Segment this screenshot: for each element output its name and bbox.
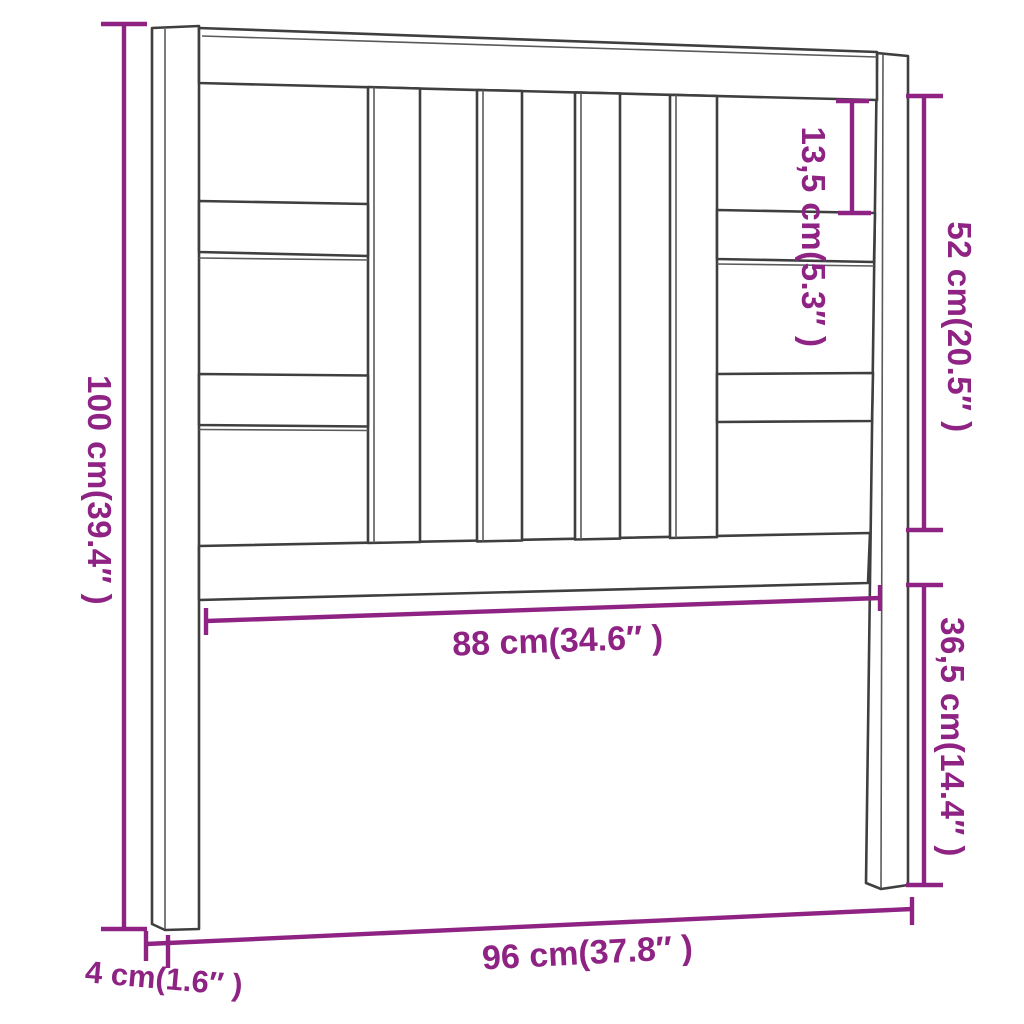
right-post <box>866 53 908 889</box>
left-horizontal-slat-lower <box>199 374 368 427</box>
dim-label-inner-width: 88 cm(34.6″ ) <box>452 618 664 663</box>
right-horizontal-slat-lower <box>717 373 873 422</box>
dimension-total-height: 100 cm(39.4″ ) <box>81 24 147 929</box>
dimension-total-width: 96 cm(37.8″ ) <box>146 897 912 978</box>
dimension-panel-height: 52 cm(20.5″ ) <box>906 96 978 530</box>
dim-label-total-width: 96 cm(37.8″ ) <box>481 929 694 978</box>
diagram-canvas: 100 cm(39.4″ ) 13,5 cm(5.3″ ) 52 cm(20.5… <box>0 0 1024 1024</box>
left-upper-slat-facet <box>199 258 368 260</box>
dim-label-total-height: 100 cm(39.4″ ) <box>81 375 118 605</box>
vertical-slat-1 <box>368 87 420 543</box>
dim-line-inner-width <box>206 598 880 621</box>
dim-label-post-thickness: 4 cm(1.6″ ) <box>84 954 244 1003</box>
dim-label-top-gap: 13,5 cm(5.3″ ) <box>795 127 832 348</box>
dim-label-panel-height: 52 cm(20.5″ ) <box>941 221 978 432</box>
headboard-drawing <box>152 26 908 930</box>
dimension-annotations: 100 cm(39.4″ ) 13,5 cm(5.3″ ) 52 cm(20.5… <box>81 24 978 1003</box>
bottom-rail <box>199 533 870 600</box>
headboard-dimension-diagram: 100 cm(39.4″ ) 13,5 cm(5.3″ ) 52 cm(20.5… <box>0 0 1024 1024</box>
dimension-lower-height: 36,5 cm(14.4″ ) <box>906 585 971 885</box>
left-lower-slat-facet <box>199 430 368 431</box>
left-horizontal-slat-upper <box>199 201 368 256</box>
left-post <box>152 26 199 930</box>
dim-label-lower-height: 36,5 cm(14.4″ ) <box>934 617 971 857</box>
vertical-slat-4 <box>670 95 717 538</box>
